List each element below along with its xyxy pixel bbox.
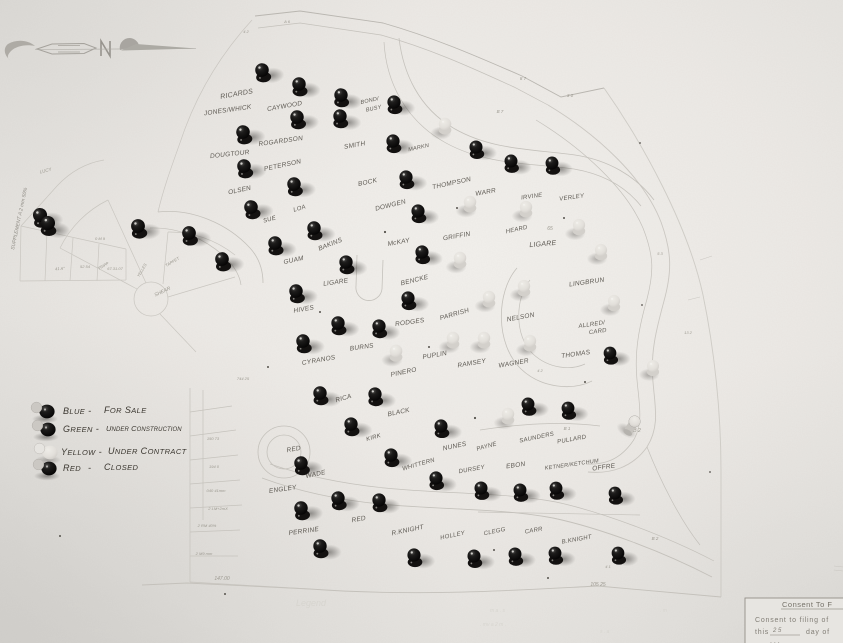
svg-text:Consent to filing of: Consent to filing of (755, 617, 829, 624)
svg-text:s . a: s . a (600, 629, 610, 635)
svg-text:13 2: 13 2 (684, 330, 693, 335)
svg-text:B 7: B 7 (497, 109, 504, 114)
svg-text:UNDER CONTRACT: UNDER CONTRACT (108, 446, 188, 456)
svg-text:B 1: B 1 (564, 426, 571, 431)
svg-text:040 41mm: 040 41mm (207, 488, 227, 493)
svg-text:. . .: . . . (770, 638, 780, 643)
svg-text:RED: RED (63, 463, 81, 473)
svg-text:this: this (755, 629, 769, 636)
svg-text:2 5: 2 5 (772, 628, 782, 634)
svg-text:B 2: B 2 (652, 536, 659, 541)
svg-text:2 RM 40%: 2 RM 40% (197, 523, 217, 528)
svg-text:105 25: 105 25 (590, 582, 606, 588)
svg-text:65: 65 (547, 226, 553, 232)
svg-text:4 1: 4 1 (605, 564, 611, 569)
svg-text:4 2: 4 2 (537, 368, 543, 373)
svg-text:a v . m s . a: a v . m s . a (95, 628, 121, 634)
svg-text:FOR SALE: FOR SALE (104, 405, 147, 415)
svg-text:67.31.07: 67.31.07 (107, 266, 123, 271)
svg-text:. mv a 2 m .: . mv a 2 m . (480, 622, 506, 628)
svg-text:8 7: 8 7 (520, 76, 527, 81)
svg-text:4 2: 4 2 (243, 29, 249, 34)
svg-text:day of: day of (806, 629, 830, 636)
svg-text:52 54: 52 54 (80, 264, 91, 269)
svg-text:. m: . m (660, 608, 667, 614)
svg-text:A 6: A 6 (283, 19, 291, 24)
svg-text:2 M9 mm: 2 M9 mm (195, 551, 213, 556)
svg-text:CLOSED: CLOSED (104, 462, 139, 472)
svg-text:3 0: 3 0 (567, 93, 574, 98)
svg-text:-: - (88, 463, 91, 473)
svg-text:GREEN -: GREEN - (63, 424, 99, 434)
svg-text:147.00: 147.00 (214, 576, 230, 582)
svg-text:Consent To F: Consent To F (782, 600, 832, 609)
svg-text:2 LM+2mX: 2 LM+2mX (207, 506, 228, 511)
svg-text:BLUE -: BLUE - (63, 406, 92, 416)
svg-text:m a . s: m a . s (490, 608, 506, 614)
svg-text:744 25: 744 25 (237, 376, 250, 381)
svg-text:m 2%: m 2% (68, 603, 81, 609)
svg-text:0 M 9: 0 M 9 (95, 236, 106, 241)
svg-text:Legend: Legend (296, 598, 327, 608)
svg-text:194 0: 194 0 (209, 464, 220, 469)
svg-text:150 73: 150 73 (207, 436, 220, 441)
svg-text:41 A°: 41 A° (55, 266, 65, 272)
svg-text:YELLOW -: YELLOW - (61, 447, 102, 457)
svg-text:5 3: 5 3 (657, 251, 663, 256)
